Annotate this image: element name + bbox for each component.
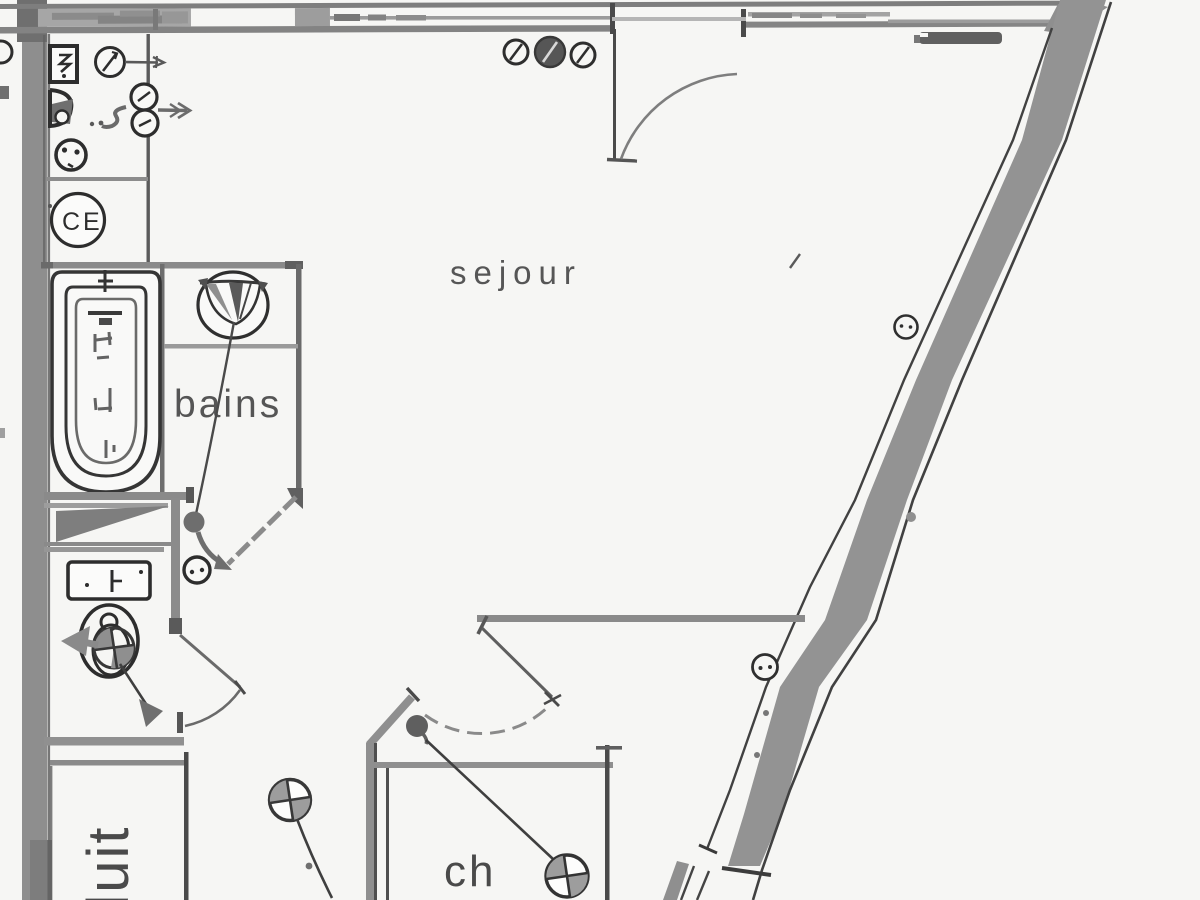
svg-text:CE: CE (62, 208, 103, 236)
svg-text:ch: ch (444, 847, 496, 896)
svg-text:duit: duit (76, 825, 141, 900)
svg-text:bains: bains (174, 383, 282, 426)
svg-text:sejour: sejour (450, 254, 582, 291)
